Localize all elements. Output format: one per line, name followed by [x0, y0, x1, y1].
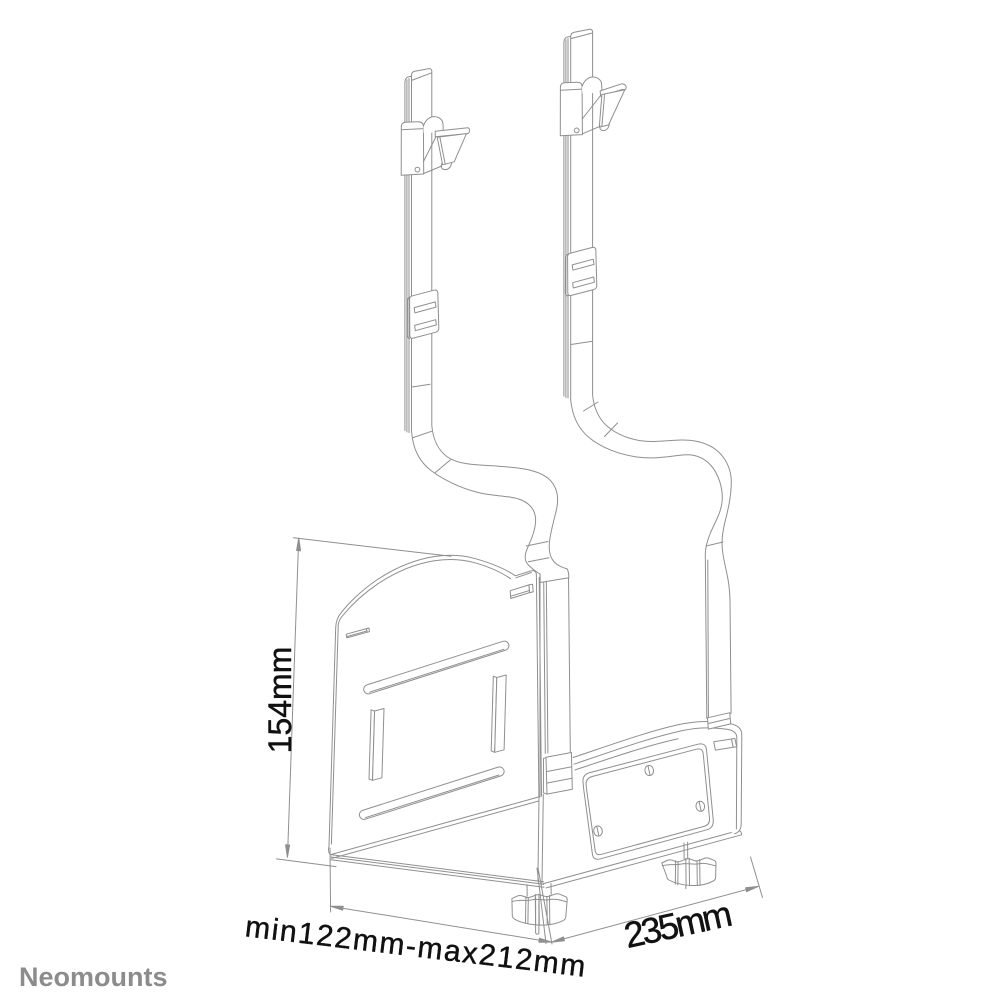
svg-text:235mm: 235mm	[620, 893, 734, 956]
svg-text:154mm: 154mm	[262, 647, 298, 754]
svg-text:Neomounts: Neomounts	[19, 962, 168, 992]
